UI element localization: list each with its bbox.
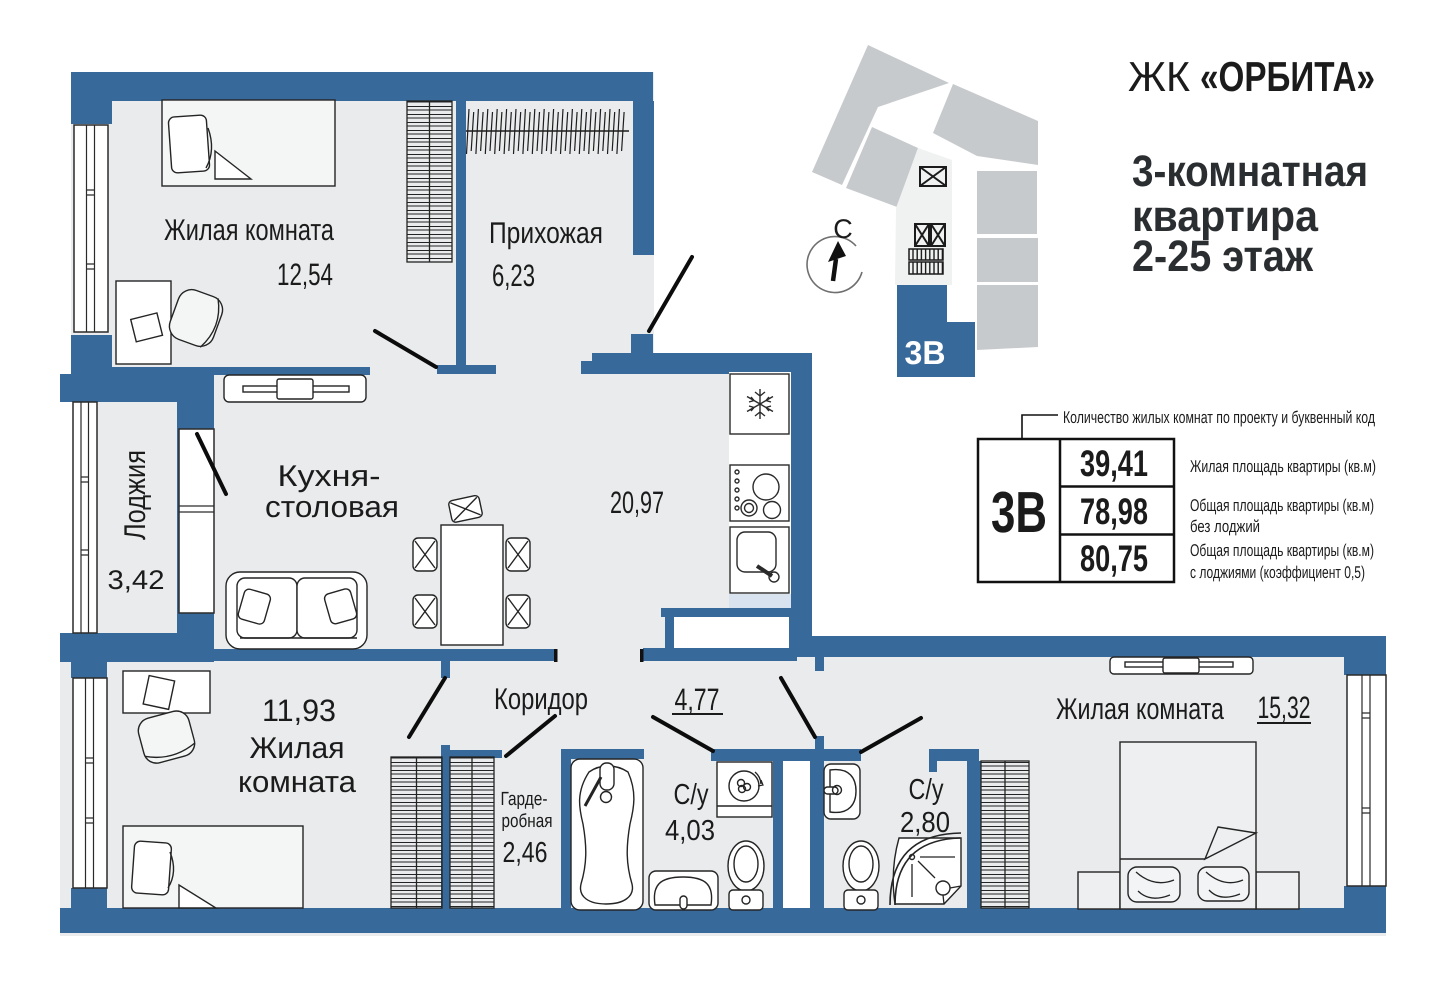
- svg-text:2-25 этаж: 2-25 этаж: [1132, 232, 1314, 281]
- svg-text:Кухня-: Кухня-: [278, 460, 381, 493]
- svg-text:3,42: 3,42: [108, 565, 165, 595]
- svg-text:ЖК: ЖК: [1128, 53, 1191, 100]
- svg-text:20,97: 20,97: [610, 485, 664, 520]
- svg-text:робная: робная: [502, 811, 553, 832]
- svg-text:6,23: 6,23: [492, 258, 535, 293]
- svg-text:комната: комната: [238, 766, 356, 799]
- svg-text:3В: 3В: [991, 480, 1047, 545]
- svg-text:80,75: 80,75: [1080, 538, 1148, 579]
- svg-text:3-комнатная: 3-комнатная: [1132, 147, 1368, 196]
- svg-text:Жилая площадь квартиры (кв.м): Жилая площадь квартиры (кв.м): [1190, 457, 1376, 476]
- svg-text:Жилая комната: Жилая комната: [1056, 693, 1224, 726]
- svg-text:Общая площадь квартиры (кв.м): Общая площадь квартиры (кв.м): [1190, 496, 1374, 515]
- svg-text:39,41: 39,41: [1080, 443, 1148, 484]
- svg-text:Жилая комната: Жилая комната: [164, 214, 334, 247]
- svg-text:С/у: С/у: [674, 779, 709, 811]
- svg-text:столовая: столовая: [265, 491, 399, 524]
- svg-text:3В: 3В: [905, 334, 946, 371]
- svg-text:15,32: 15,32: [1258, 690, 1311, 725]
- svg-text:«ОРБИТА»: «ОРБИТА»: [1200, 53, 1375, 100]
- svg-text:Гарде-: Гарде-: [501, 789, 548, 810]
- svg-text:Количество жилых комнат по про: Количество жилых комнат по проекту и бук…: [1063, 408, 1375, 427]
- svg-text:11,93: 11,93: [262, 693, 336, 728]
- svg-text:С: С: [833, 214, 853, 244]
- svg-text:Прихожая: Прихожая: [489, 217, 603, 250]
- svg-text:Жилая: Жилая: [250, 732, 345, 765]
- svg-text:без лоджий: без лоджий: [1190, 517, 1260, 536]
- svg-text:2,46: 2,46: [503, 837, 548, 869]
- svg-text:4,03: 4,03: [665, 815, 715, 847]
- svg-text:4,77: 4,77: [675, 682, 720, 717]
- svg-text:2,80: 2,80: [900, 807, 950, 839]
- svg-text:78,98: 78,98: [1080, 491, 1148, 532]
- svg-text:12,54: 12,54: [277, 257, 333, 292]
- svg-text:Общая площадь квартиры (кв.м): Общая площадь квартиры (кв.м): [1190, 541, 1374, 560]
- svg-text:Коридор: Коридор: [494, 683, 588, 716]
- svg-text:Лоджия: Лоджия: [119, 450, 152, 540]
- svg-text:с лоджиями (коэффициент 0,5): с лоджиями (коэффициент 0,5): [1190, 563, 1365, 582]
- svg-text:С/у: С/у: [909, 774, 944, 806]
